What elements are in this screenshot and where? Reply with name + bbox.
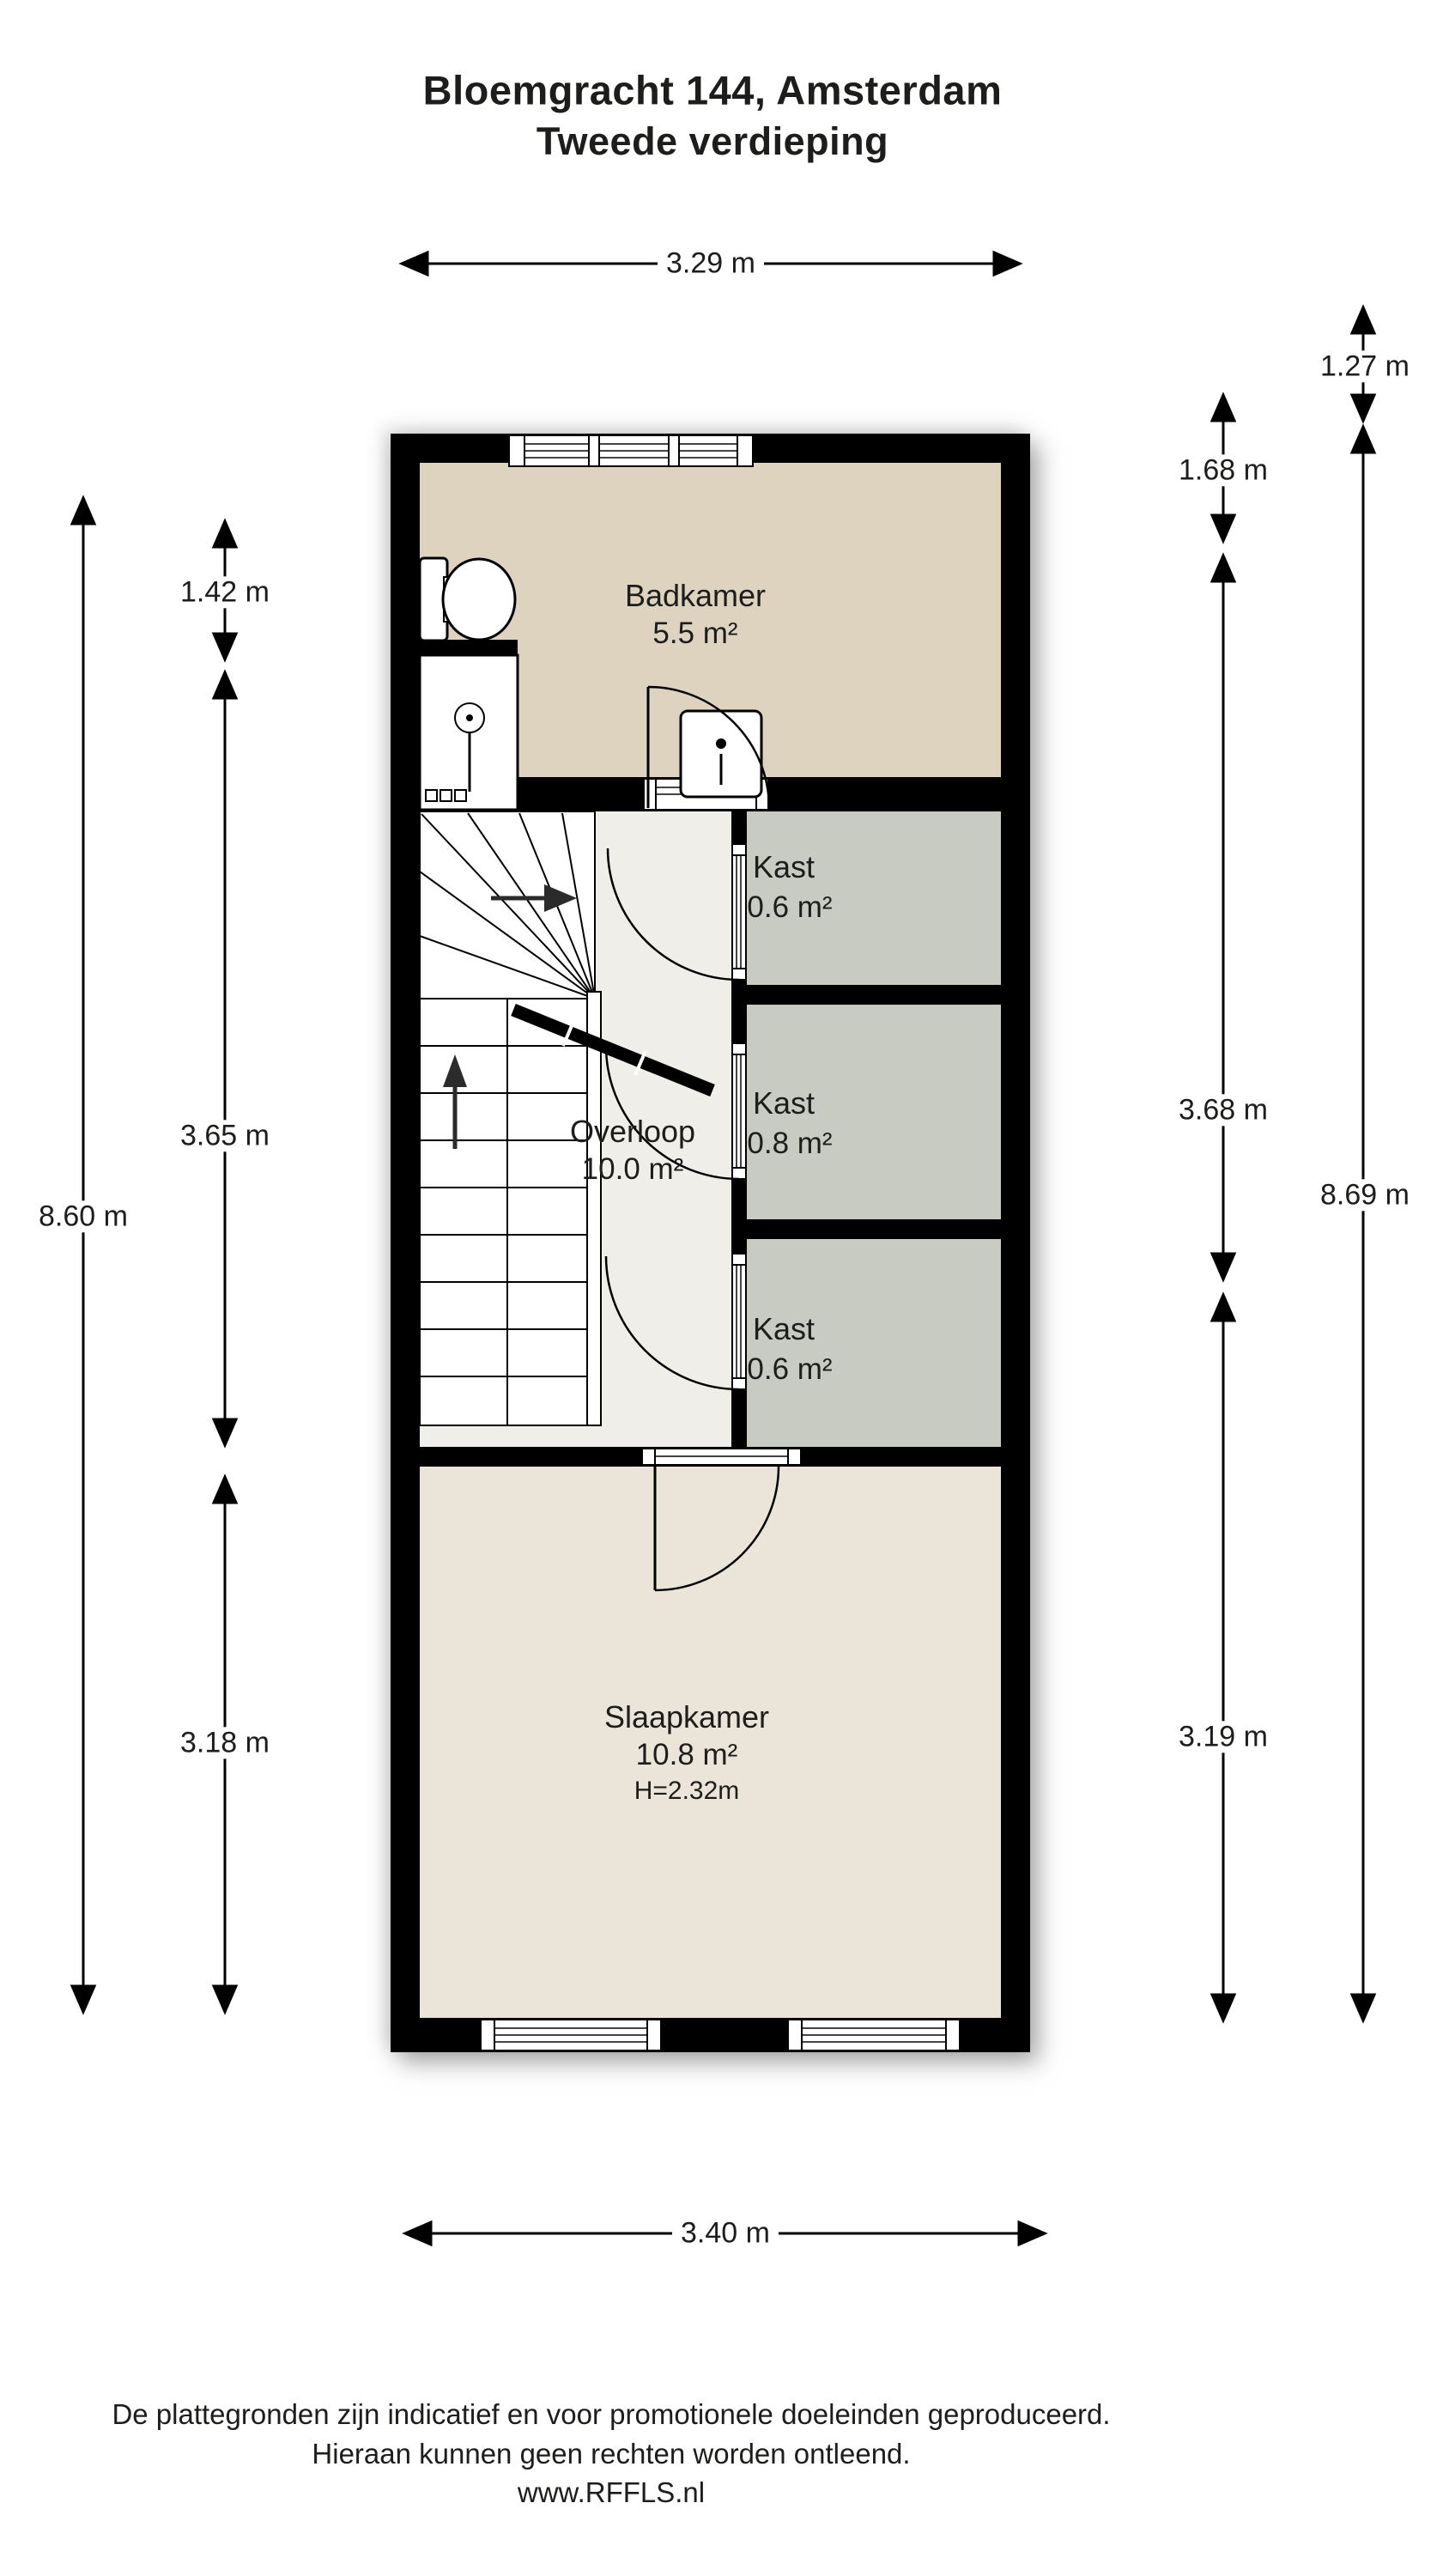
shower <box>420 655 518 810</box>
slaapkamer-label: Slaapkamer <box>604 1699 769 1735</box>
washing-machine <box>681 711 761 797</box>
toilet <box>420 558 515 641</box>
kast1-label: Kast <box>753 849 815 885</box>
overloop-label: Overloop <box>570 1114 695 1150</box>
badkamer-window <box>509 435 753 466</box>
page-subtitle: Tweede verdieping <box>537 119 888 164</box>
dim-right-2: 3.68 m <box>1170 1094 1276 1126</box>
kast2-area: 0.8 m² <box>747 1127 832 1161</box>
kast3-label: Kast <box>753 1311 815 1347</box>
kast1-area: 0.6 m² <box>747 890 832 925</box>
bathroom-stub-wall <box>420 640 518 655</box>
dim-left-3: 3.18 m <box>172 1727 278 1759</box>
dim-right-1: 1.68 m <box>1170 454 1276 486</box>
dim-right-3: 3.19 m <box>1170 1721 1276 1753</box>
floorplan-page: Bloemgracht 144, Amsterdam Tweede verdie… <box>0 0 1449 2576</box>
dim-bottom: 3.40 m <box>672 2217 779 2249</box>
dim-left-1: 1.42 m <box>172 576 278 608</box>
footer-website: www.RFFLS.nl <box>518 2476 705 2509</box>
kast2-label: Kast <box>753 1085 815 1121</box>
dim-right-outer-top: 1.27 m <box>1312 350 1418 382</box>
footer-disclaimer-2: Hieraan kunnen geen rechten worden ontle… <box>312 2438 910 2470</box>
kast-doorframes <box>732 844 746 1389</box>
badkamer-label: Badkamer <box>625 578 766 614</box>
dim-right-outer: 8.69 m <box>1312 1179 1418 1211</box>
slaapkamer-doorframe <box>642 1449 801 1465</box>
overloop-area: 10.0 m² <box>582 1152 684 1187</box>
slaapkamer-height: H=2.32m <box>634 1777 740 1806</box>
badkamer-area: 5.5 m² <box>652 617 737 651</box>
dim-left-outer: 8.60 m <box>30 1200 136 1232</box>
slaapkamer-area: 10.8 m² <box>636 1738 738 1772</box>
footer-disclaimer-1: De plattegronden zijn indicatief en voor… <box>112 2398 1110 2431</box>
dim-top: 3.29 m <box>658 247 764 279</box>
dim-left-2: 3.65 m <box>172 1120 278 1151</box>
slaapkamer-window-right <box>788 2020 960 2050</box>
kast3-area: 0.6 m² <box>747 1352 832 1387</box>
slaapkamer-window-left <box>481 2020 661 2050</box>
stair-balustrade <box>587 992 601 1425</box>
page-title: Bloemgracht 144, Amsterdam <box>423 67 1003 114</box>
floorplan-drawing <box>0 0 1449 2576</box>
